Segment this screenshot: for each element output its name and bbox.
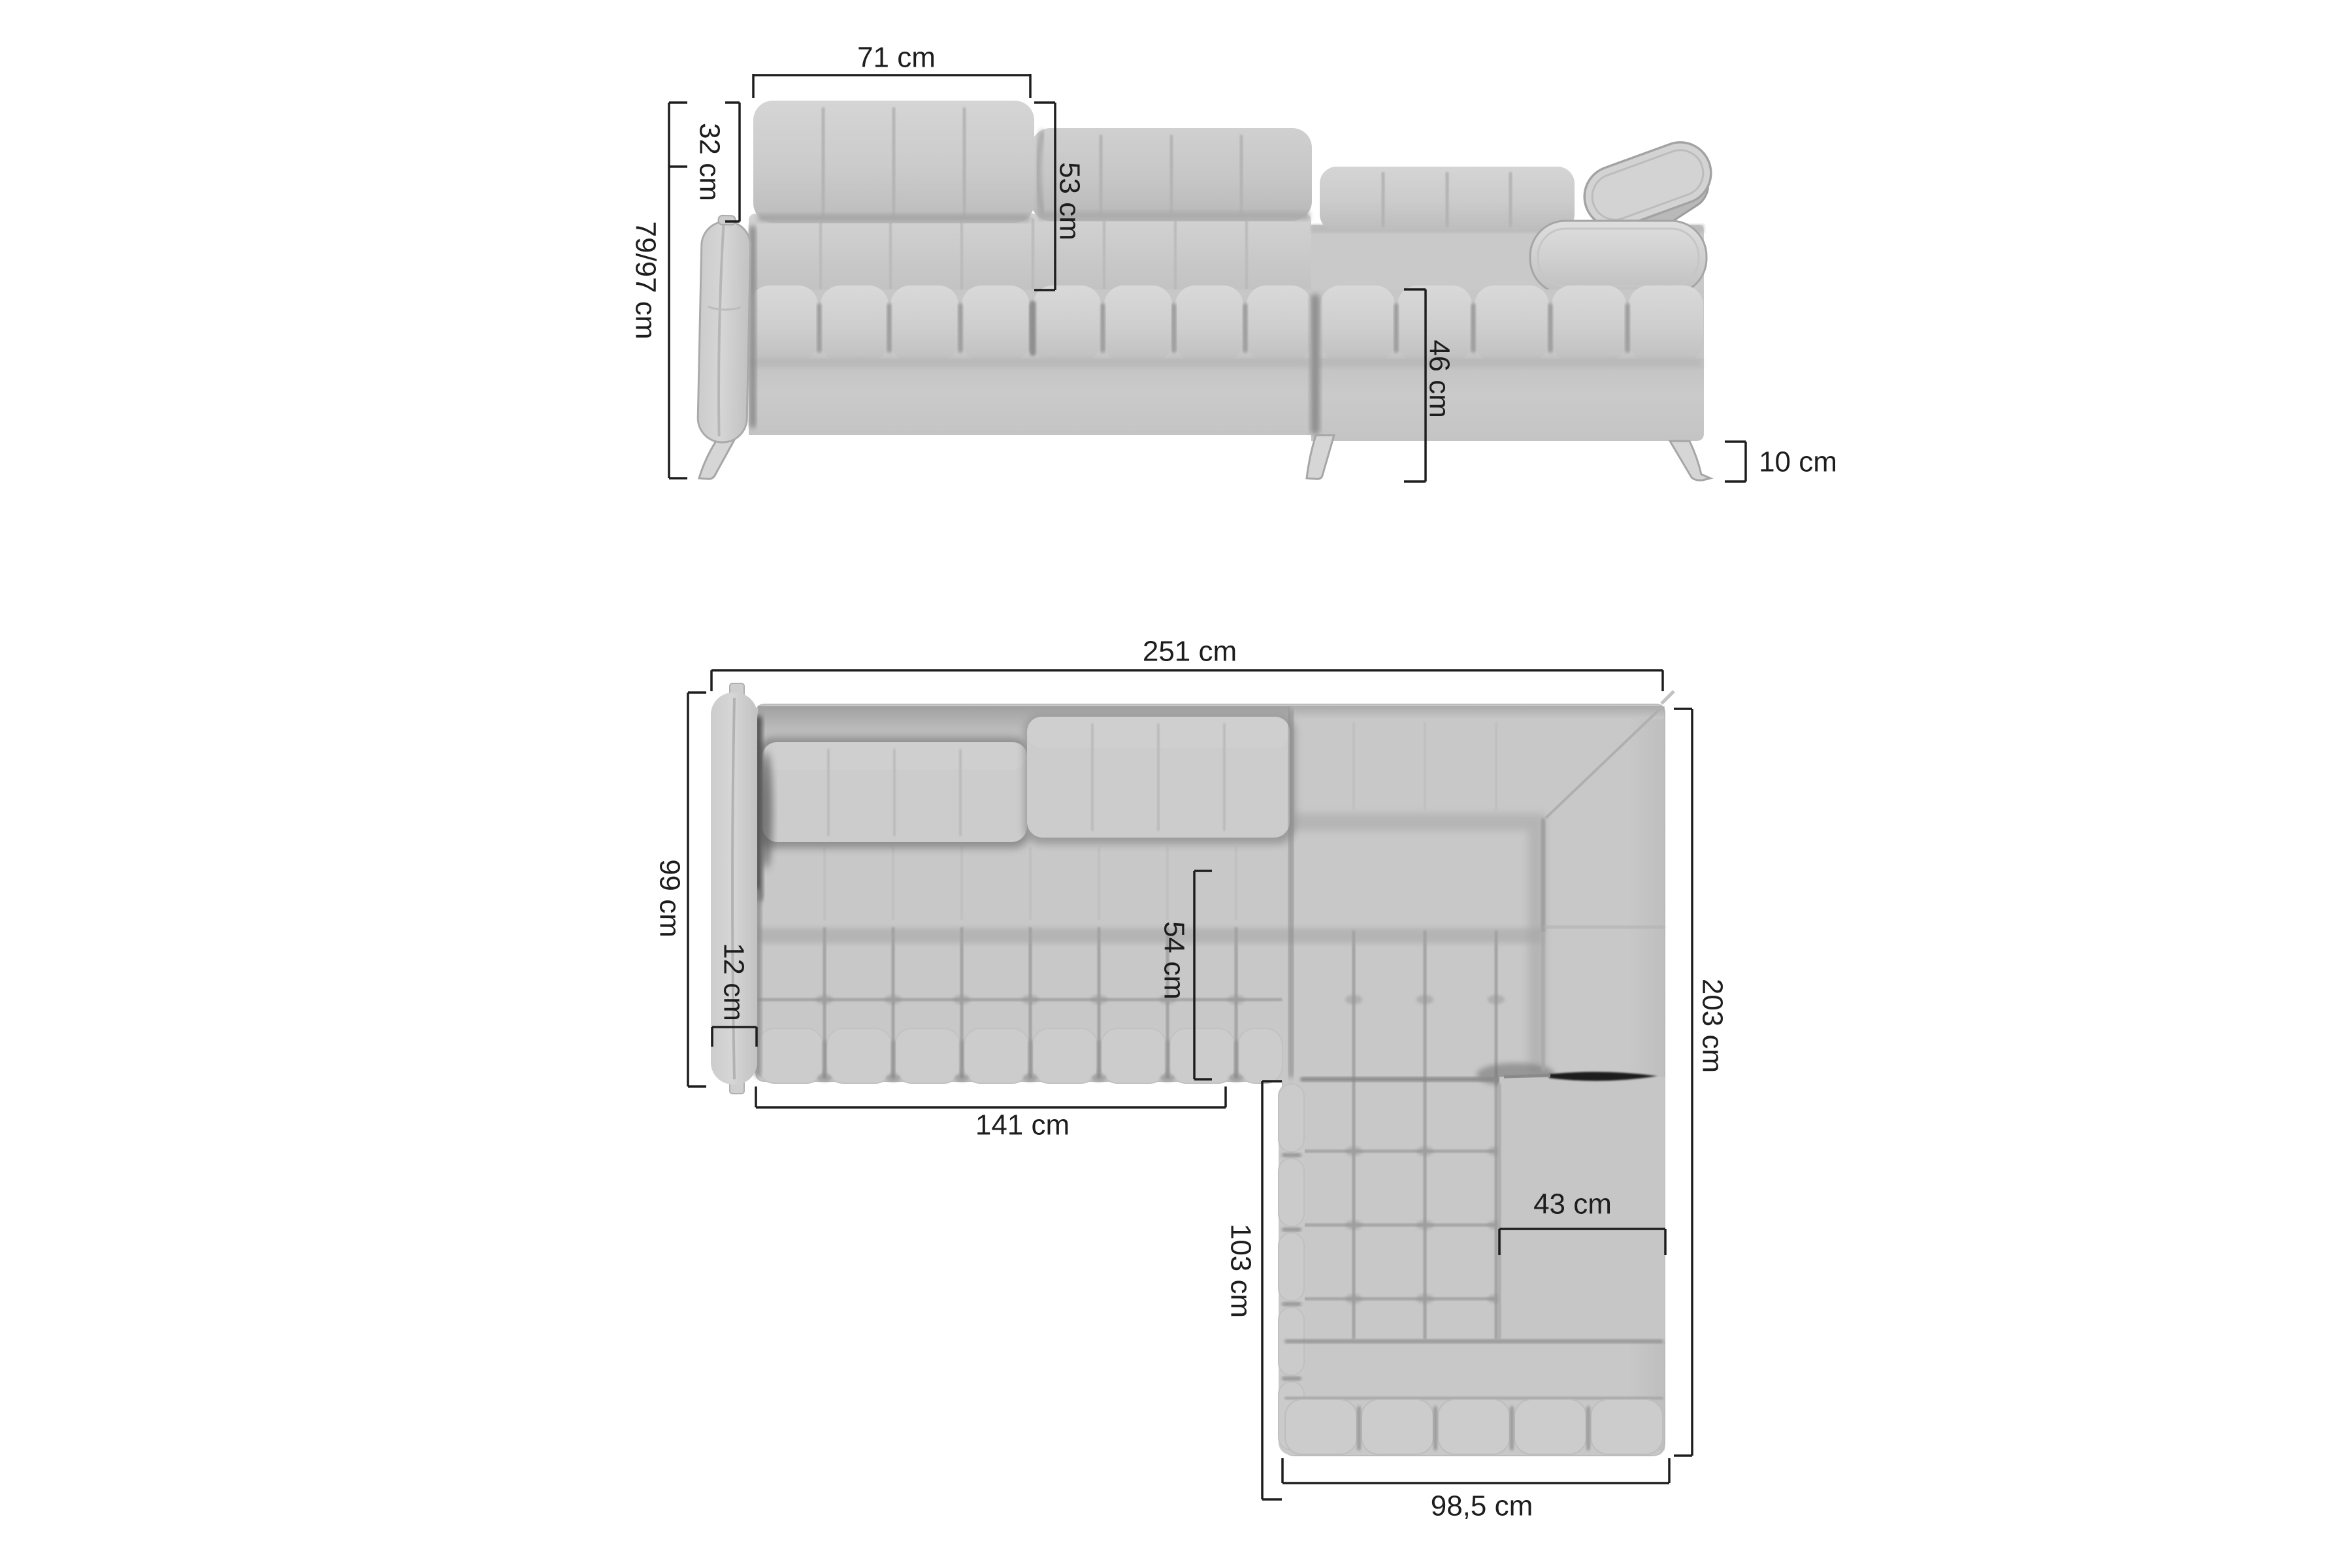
svg-text:98,5 cm: 98,5 cm [1431, 1490, 1533, 1522]
svg-text:32 cm: 32 cm [694, 123, 726, 201]
svg-text:10 cm: 10 cm [1759, 446, 1837, 478]
svg-text:71 cm: 71 cm [857, 42, 936, 74]
svg-text:251 cm: 251 cm [1143, 636, 1237, 668]
svg-text:53 cm: 53 cm [1054, 162, 1086, 240]
svg-text:103 cm: 103 cm [1225, 1224, 1257, 1318]
svg-text:99 cm: 99 cm [654, 859, 686, 938]
svg-text:79/97 cm: 79/97 cm [630, 221, 662, 340]
svg-text:141 cm: 141 cm [975, 1109, 1070, 1141]
svg-text:43 cm: 43 cm [1533, 1188, 1612, 1220]
svg-text:203 cm: 203 cm [1697, 979, 1729, 1073]
svg-text:46 cm: 46 cm [1424, 340, 1456, 418]
svg-text:12 cm: 12 cm [718, 943, 750, 1021]
svg-text:54 cm: 54 cm [1158, 921, 1190, 1000]
